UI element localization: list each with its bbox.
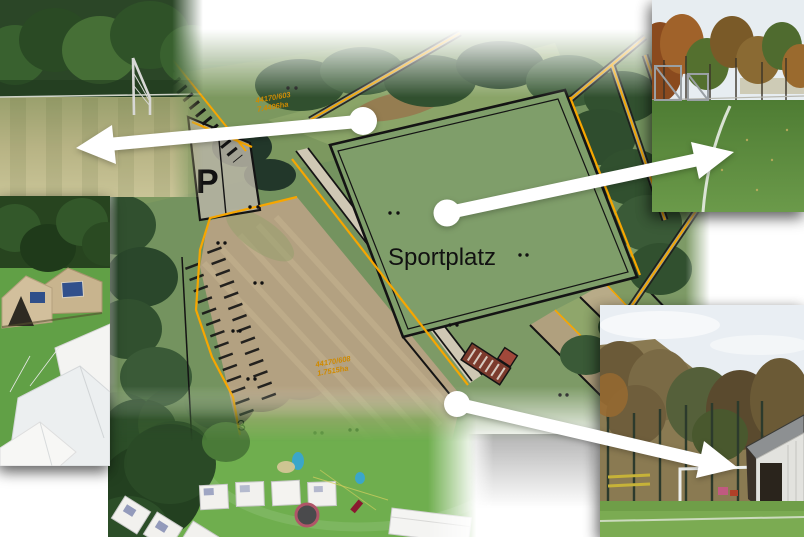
sportplatz-label: Sportplatz	[388, 244, 496, 271]
trampoline	[296, 504, 318, 526]
photo-training-pitch	[0, 0, 205, 197]
photo-goal-and-hut	[600, 305, 804, 537]
photo-camp-tents	[0, 196, 110, 466]
collage-canvas: Sportplatz P 3 44170/603 7.4496ha 44170/…	[0, 0, 804, 537]
photo-autumn-pitch	[652, 0, 804, 212]
